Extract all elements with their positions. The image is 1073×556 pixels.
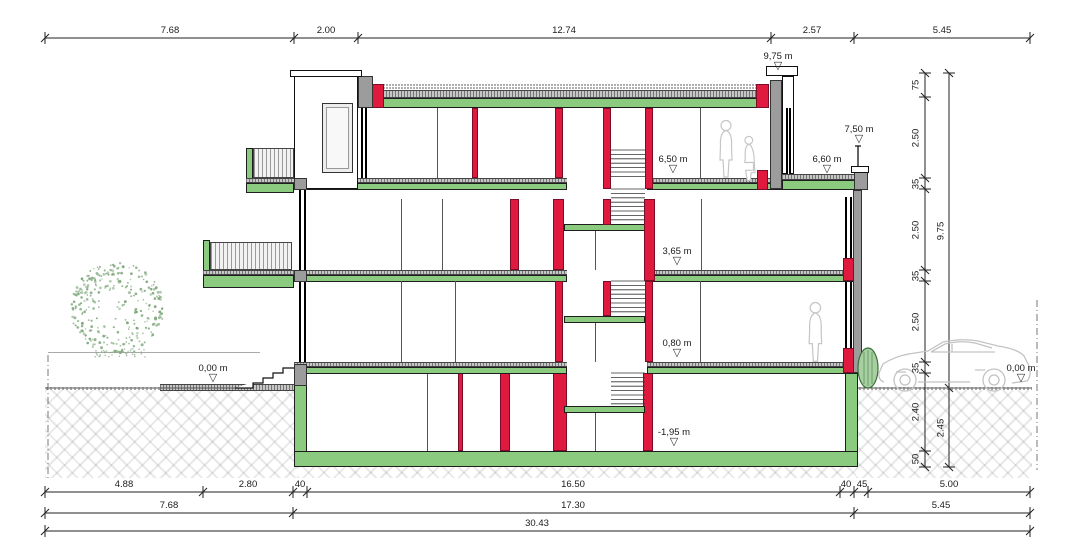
garden-wall-line: [48, 352, 260, 353]
floor-slab: [294, 367, 567, 374]
building-section-drawing: 7.68 2.00 12.74 2.57 5.45 4.88 2.80 40 1…: [0, 0, 1073, 556]
dim-label: 7.68: [160, 500, 179, 511]
person-standing: [720, 121, 732, 178]
stair-wall-red: [603, 281, 611, 316]
floor-slab: [647, 367, 854, 374]
level-triangle-icon: ▽: [751, 62, 805, 71]
entry-landing-slab: [160, 384, 300, 391]
dim-label: 12.74: [552, 25, 576, 36]
dim-label: 75: [911, 80, 922, 91]
foundation-slab: [294, 451, 858, 467]
earth-hatch-below-foundation: [297, 467, 856, 478]
terrace-parapet-block: [854, 170, 868, 190]
dim-label: 2.40: [911, 403, 922, 422]
level-marker-street-left: 0,00 m▽: [186, 364, 240, 383]
level-marker-street-right: 0,00 m▽: [994, 364, 1048, 383]
dim-label: 2.45: [936, 419, 947, 438]
dim-label: 2.50: [911, 129, 922, 148]
floor-slab: [294, 275, 567, 282]
person-standing: [809, 303, 821, 362]
dim-label: 35: [911, 271, 922, 282]
roof-slab: [383, 98, 757, 108]
dim-label: 40: [295, 479, 306, 490]
terrace-edge-red: [757, 170, 768, 190]
roof-parapet-block: [358, 76, 373, 108]
dim-label: 40: [841, 479, 852, 490]
balcony-slab: [246, 183, 294, 193]
column-red: [510, 199, 519, 270]
stair-wall-red: [603, 108, 611, 189]
stair-treads: [611, 150, 645, 404]
partition: [595, 413, 596, 451]
column-red: [458, 373, 463, 451]
column-red: [555, 281, 563, 362]
column-red: [472, 108, 478, 178]
level-triangle-icon: ▽: [186, 374, 240, 383]
column-red: [500, 373, 510, 451]
level-marker-terrace: 6,60 m▽: [800, 155, 854, 174]
level-marker-ground-floor: 0,80 m▽: [650, 339, 704, 358]
dim-label: 2.57: [803, 25, 822, 36]
basement-wall-right: [845, 373, 858, 452]
dim-label: 45: [857, 479, 868, 490]
floor-slab: [647, 275, 854, 282]
partition: [700, 108, 701, 178]
bulkhead-window-inner: [326, 107, 349, 169]
dim-label: 7.68: [161, 25, 180, 36]
column-red: [553, 199, 564, 270]
balcony-slab: [203, 275, 294, 288]
dim-label: 4.88: [115, 479, 134, 490]
slab-edge-block: [294, 178, 307, 190]
dim-label: 16.50: [561, 479, 585, 490]
dim-label: 17.30: [561, 500, 585, 511]
dim-label: 5.00: [940, 479, 959, 490]
ground-surface-right: [858, 387, 1032, 390]
partition: [401, 199, 402, 270]
partition: [595, 231, 596, 270]
roof-screed: [383, 90, 757, 98]
level-marker-roof: 9,75 m▽: [751, 52, 805, 71]
partition: [401, 281, 402, 362]
stair-wall-red: [645, 108, 653, 189]
stair-wall-red: [603, 199, 611, 225]
dim-label: 9.75: [936, 222, 947, 241]
dim-label: 50: [911, 454, 922, 465]
column-red: [555, 108, 563, 178]
level-marker-second-floor: 3,65 m▽: [650, 247, 704, 266]
terrace-door-glazing: [786, 108, 791, 174]
dim-label: 35: [911, 363, 922, 374]
parapet-column: [770, 80, 782, 189]
right-facade-glazing: [845, 282, 852, 348]
partition: [442, 199, 443, 270]
stair-landing: [564, 224, 645, 231]
partition: [455, 281, 456, 362]
partition: [595, 323, 596, 362]
level-marker-railing: 7,50 m▽: [832, 125, 886, 144]
penthouse-left-glazing: [361, 108, 367, 178]
partition: [437, 108, 438, 178]
dim-label: 2.50: [911, 221, 922, 240]
tree: [71, 262, 164, 358]
dim-label: 30.43: [525, 518, 549, 529]
level-marker-top-floor: 6,50 m▽: [646, 155, 700, 174]
dim-label: 5.45: [933, 25, 952, 36]
balcony-railing: [210, 242, 292, 270]
stair-landing: [564, 406, 645, 413]
level-triangle-icon: ▽: [650, 349, 704, 358]
dim-label: 35: [911, 179, 922, 190]
level-triangle-icon: ▽: [650, 257, 704, 266]
right-facade-glazing: [845, 197, 852, 258]
right-facade-pier: [853, 190, 862, 373]
stair-landing: [564, 316, 645, 323]
partition: [427, 373, 428, 451]
level-triangle-icon: ▽: [646, 165, 700, 174]
slab-edge-block: [294, 270, 307, 282]
level-triangle-icon: ▽: [800, 165, 854, 174]
bulkhead-roof-cap: [290, 70, 362, 77]
earth-hatch-left: [45, 390, 297, 478]
roof-edge-red: [756, 84, 769, 108]
dim-label: 2.50: [911, 313, 922, 332]
entry-wall-base: [294, 364, 307, 386]
level-triangle-icon: ▽: [647, 438, 701, 447]
dim-label: 5.45: [932, 500, 951, 511]
stair-wall-red: [644, 199, 655, 281]
level-triangle-icon: ▽: [832, 135, 886, 144]
level-marker-basement: -1,95 m▽: [647, 428, 701, 447]
roof-edge-red: [372, 84, 384, 108]
dim-label: 2.00: [317, 25, 336, 36]
person-seated: [745, 136, 755, 180]
level-triangle-icon: ▽: [994, 374, 1048, 383]
dim-label: 2.80: [239, 479, 258, 490]
balcony-railing: [253, 148, 294, 178]
